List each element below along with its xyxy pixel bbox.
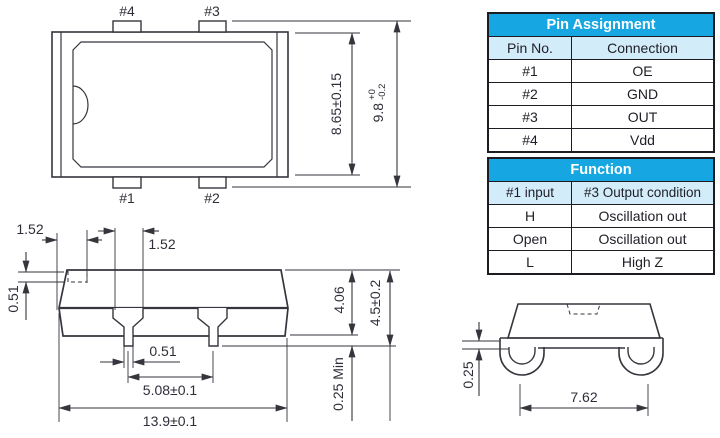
pin-1-label: #1 [119, 190, 135, 206]
pin-table-cell: #4 [489, 128, 572, 151]
dim-lead-pitch-label: 5.08±0.1 [143, 382, 197, 398]
pin-4-label: #4 [119, 3, 135, 19]
function-table-cell: L [489, 250, 572, 273]
pad-1 [113, 177, 141, 188]
pin-table-cell: OE [572, 59, 713, 82]
dim-standoff-label: 0.25 Min [330, 357, 346, 411]
pin-table-header-pin-no: Pin No. [489, 36, 572, 59]
dim-corner-offset-label: 1.52 [16, 221, 43, 237]
dim-body-height-label: 4.06 [331, 286, 347, 313]
tol-lower: -0.2 [378, 84, 388, 100]
pin1-index-notch [73, 86, 88, 124]
corner-pad-hidden-line [68, 271, 87, 282]
pin-table-cell: #3 [489, 105, 572, 128]
side-body-outline [59, 270, 288, 336]
function-table-cell: Oscillation out [572, 204, 713, 227]
function-table: Function #1 input #3 Output condition H … [487, 157, 715, 275]
pin-assignment-title: Pin Assignment [489, 14, 713, 36]
dim-overall-height-label: 4.5±0.2 [367, 280, 383, 327]
function-title: Function [489, 159, 713, 181]
pin-table-cell: #1 [489, 59, 572, 82]
dim-overall-width-label: 9.8 +0 -0.2 [368, 84, 388, 123]
lead-1 [113, 308, 143, 346]
pin-assignment-table: Pin Assignment Pin No. Connection #1 OE … [487, 12, 715, 153]
dim-overall-length-label: 13.9±0.1 [143, 413, 197, 429]
lead-2 [198, 308, 227, 346]
function-table-cell: Oscillation out [572, 227, 713, 250]
pin-3-label: #3 [204, 3, 220, 19]
top-view-drawing [52, 21, 411, 188]
pad-3 [199, 21, 226, 32]
pad-2 [199, 177, 226, 188]
package-pads [113, 21, 226, 188]
dim-corner-step-label: 0.51 [5, 285, 21, 312]
dim-overall-width-tolerance: +0 -0.2 [368, 84, 388, 100]
pin-2-label: #2 [204, 190, 220, 206]
function-table-cell: H [489, 204, 572, 227]
function-table-cell: Open [489, 227, 572, 250]
function-table-header-output: #3 Output condition [572, 181, 713, 204]
dim-lead-root-width-label: 1.52 [148, 236, 175, 252]
dim-overall-width-value: 9.8 [370, 103, 386, 122]
end-body-outline [508, 304, 660, 338]
pin-table-cell: Vdd [572, 128, 713, 151]
pin-table-cell: GND [572, 82, 713, 105]
pad-4 [113, 21, 141, 32]
dim-body-width-label: 8.65±0.15 [328, 73, 344, 135]
function-table-header-input: #1 input [489, 181, 572, 204]
right-j-lead-outer [619, 338, 663, 375]
dim-lead-thickness-label: 0.25 [460, 361, 476, 388]
left-j-lead-inner [509, 347, 535, 364]
pin-table-cell: OUT [572, 105, 713, 128]
pin-table-header-connection: Connection [572, 36, 713, 59]
dim-lead-span-label: 7.62 [570, 389, 597, 405]
right-j-lead-inner [628, 347, 654, 364]
function-table-cell: High Z [572, 250, 713, 273]
pin-table-cell: #2 [489, 82, 572, 105]
dim-pin-width-label: 0.51 [149, 343, 176, 359]
end-notch-hidden-line [567, 304, 600, 314]
lid-inner-outline [73, 42, 272, 167]
end-view-extension-lines [462, 341, 648, 416]
end-view-drawing [462, 304, 663, 416]
package-outline-page: #4 #3 #1 #2 8.65±0.15 9.8 +0 -0.2 1.52 1… [0, 0, 720, 438]
left-j-lead-outer [500, 338, 544, 375]
